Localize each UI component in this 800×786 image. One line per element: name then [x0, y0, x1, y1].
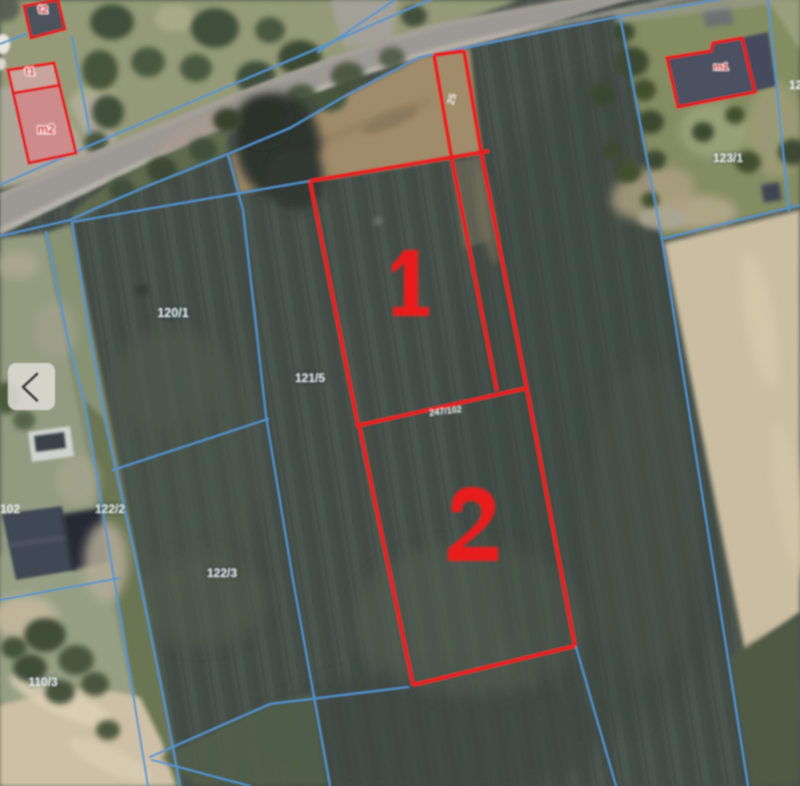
svg-text:110/3: 110/3: [28, 675, 58, 689]
svg-text:120/1: 120/1: [157, 306, 188, 320]
svg-text:t2: t2: [38, 4, 48, 16]
svg-text:t1: t1: [25, 66, 35, 78]
svg-text:122/2: 122/2: [95, 502, 125, 516]
svg-text:m2: m2: [37, 122, 55, 136]
svg-text:123/1: 123/1: [713, 151, 743, 165]
svg-text:122/3: 122/3: [207, 566, 237, 580]
svg-text:102: 102: [0, 502, 20, 516]
svg-text:121/5: 121/5: [295, 371, 325, 385]
svg-text:120: 120: [789, 78, 800, 92]
svg-text:m1: m1: [713, 61, 728, 73]
